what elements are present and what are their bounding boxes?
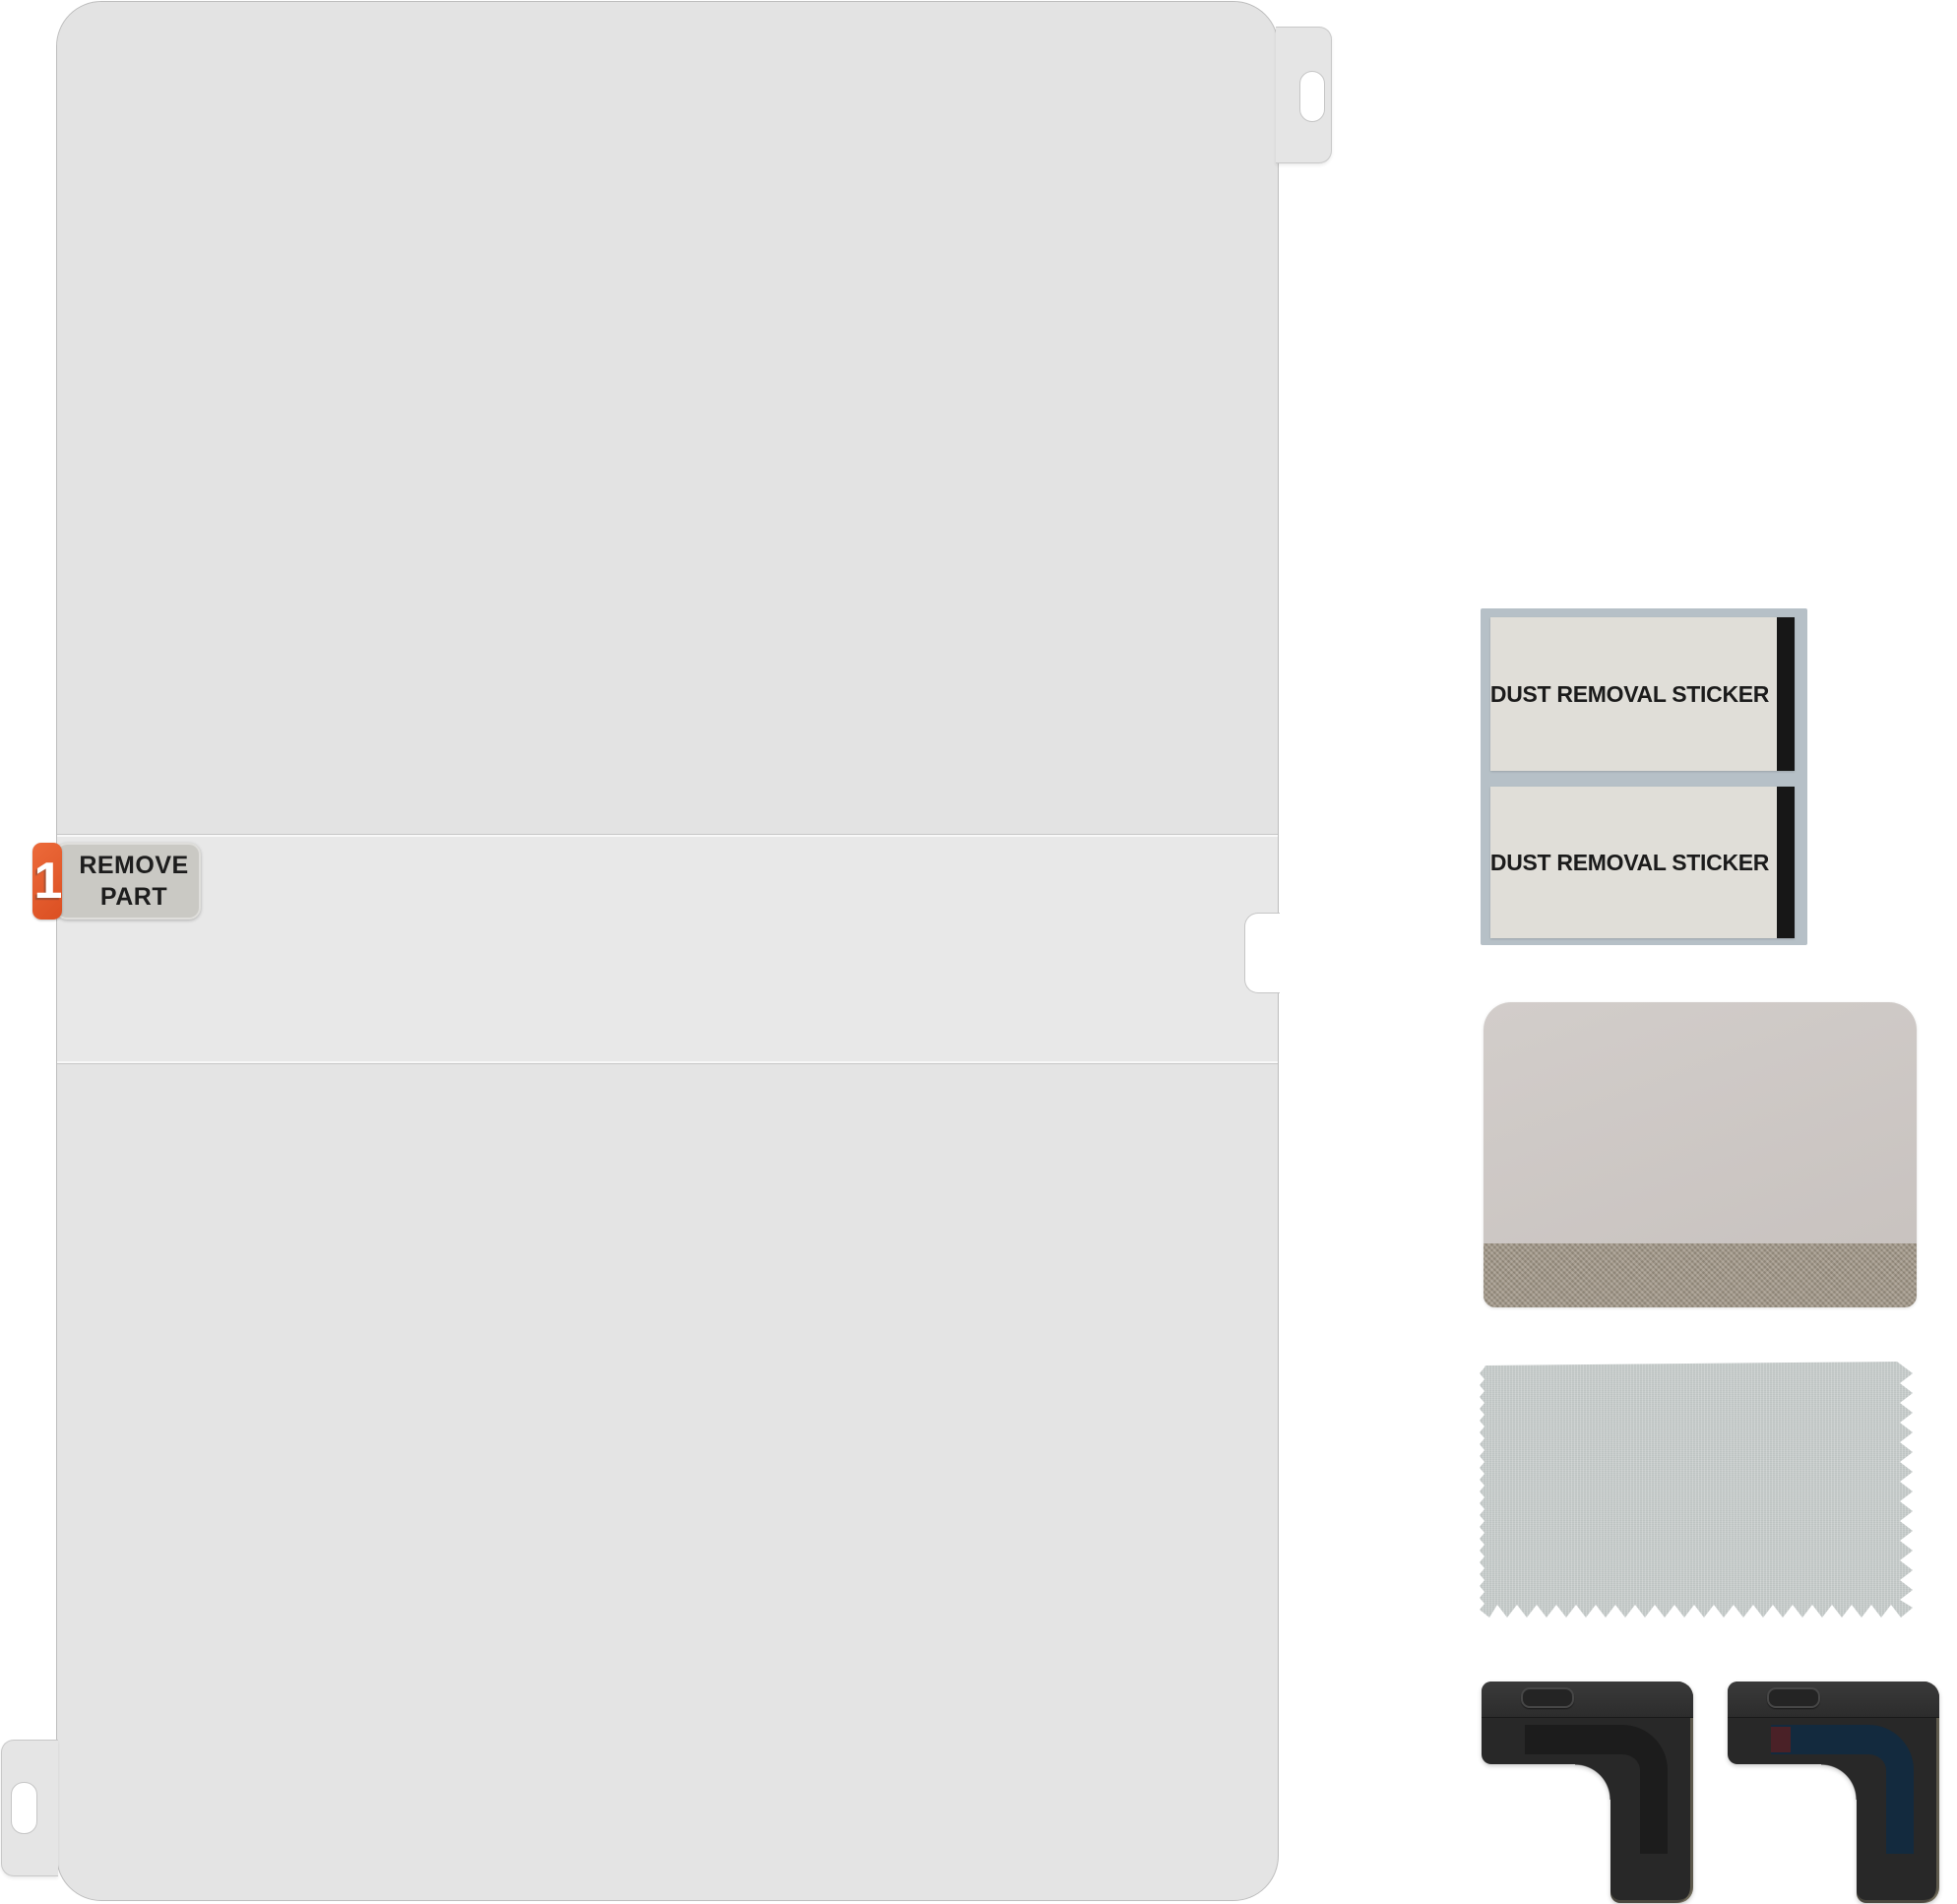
guide-top-face bbox=[1482, 1682, 1693, 1718]
corner-alignment-guide-right bbox=[1728, 1682, 1939, 1903]
product-photo: REMOVE PART 1 DUST REMOVAL STICKER DUST … bbox=[0, 0, 1957, 1904]
pull-tab-slot bbox=[11, 1782, 37, 1834]
remove-part-text-line2: PART bbox=[100, 881, 167, 913]
corner-alignment-guide-left bbox=[1482, 1682, 1693, 1903]
dust-removal-sticker: DUST REMOVAL STICKER bbox=[1490, 617, 1795, 771]
guide-grip-tab bbox=[1767, 1687, 1820, 1708]
film-remove-section bbox=[57, 834, 1278, 1064]
dust-removal-sticker: DUST REMOVAL STICKER bbox=[1490, 787, 1795, 938]
guide-red-marker bbox=[1771, 1727, 1791, 1752]
squeegee-felt-edge bbox=[1484, 1243, 1917, 1307]
dust-sticker-label: DUST REMOVAL STICKER bbox=[1490, 850, 1795, 876]
film-pull-tab-bottom bbox=[1, 1740, 58, 1876]
guide-top-face bbox=[1728, 1682, 1939, 1718]
guide-adhesive-channel bbox=[1771, 1725, 1914, 1854]
step-number-badge: 1 bbox=[32, 843, 62, 920]
remove-part-label: REMOVE PART bbox=[55, 843, 201, 920]
sticker-grip-stripe bbox=[1777, 617, 1795, 771]
squeegee-card bbox=[1484, 1002, 1917, 1307]
film-upper-section bbox=[57, 2, 1278, 834]
dust-sticker-backing-sheet: DUST REMOVAL STICKER DUST REMOVAL STICKE… bbox=[1481, 608, 1807, 945]
microfiber-cloth bbox=[1480, 1362, 1913, 1618]
guide-grip-tab bbox=[1521, 1687, 1574, 1708]
dust-sticker-label: DUST REMOVAL STICKER bbox=[1490, 681, 1795, 708]
guide-adhesive-channel bbox=[1525, 1725, 1668, 1854]
sticker-grip-stripe bbox=[1777, 787, 1795, 938]
film-pull-tab-top bbox=[1276, 27, 1332, 163]
screen-protector-film bbox=[56, 1, 1279, 1901]
remove-part-text-line1: REMOVE bbox=[79, 850, 188, 881]
film-edge-notch bbox=[1244, 913, 1280, 993]
pull-tab-slot bbox=[1299, 71, 1325, 122]
step-number: 1 bbox=[34, 852, 61, 911]
